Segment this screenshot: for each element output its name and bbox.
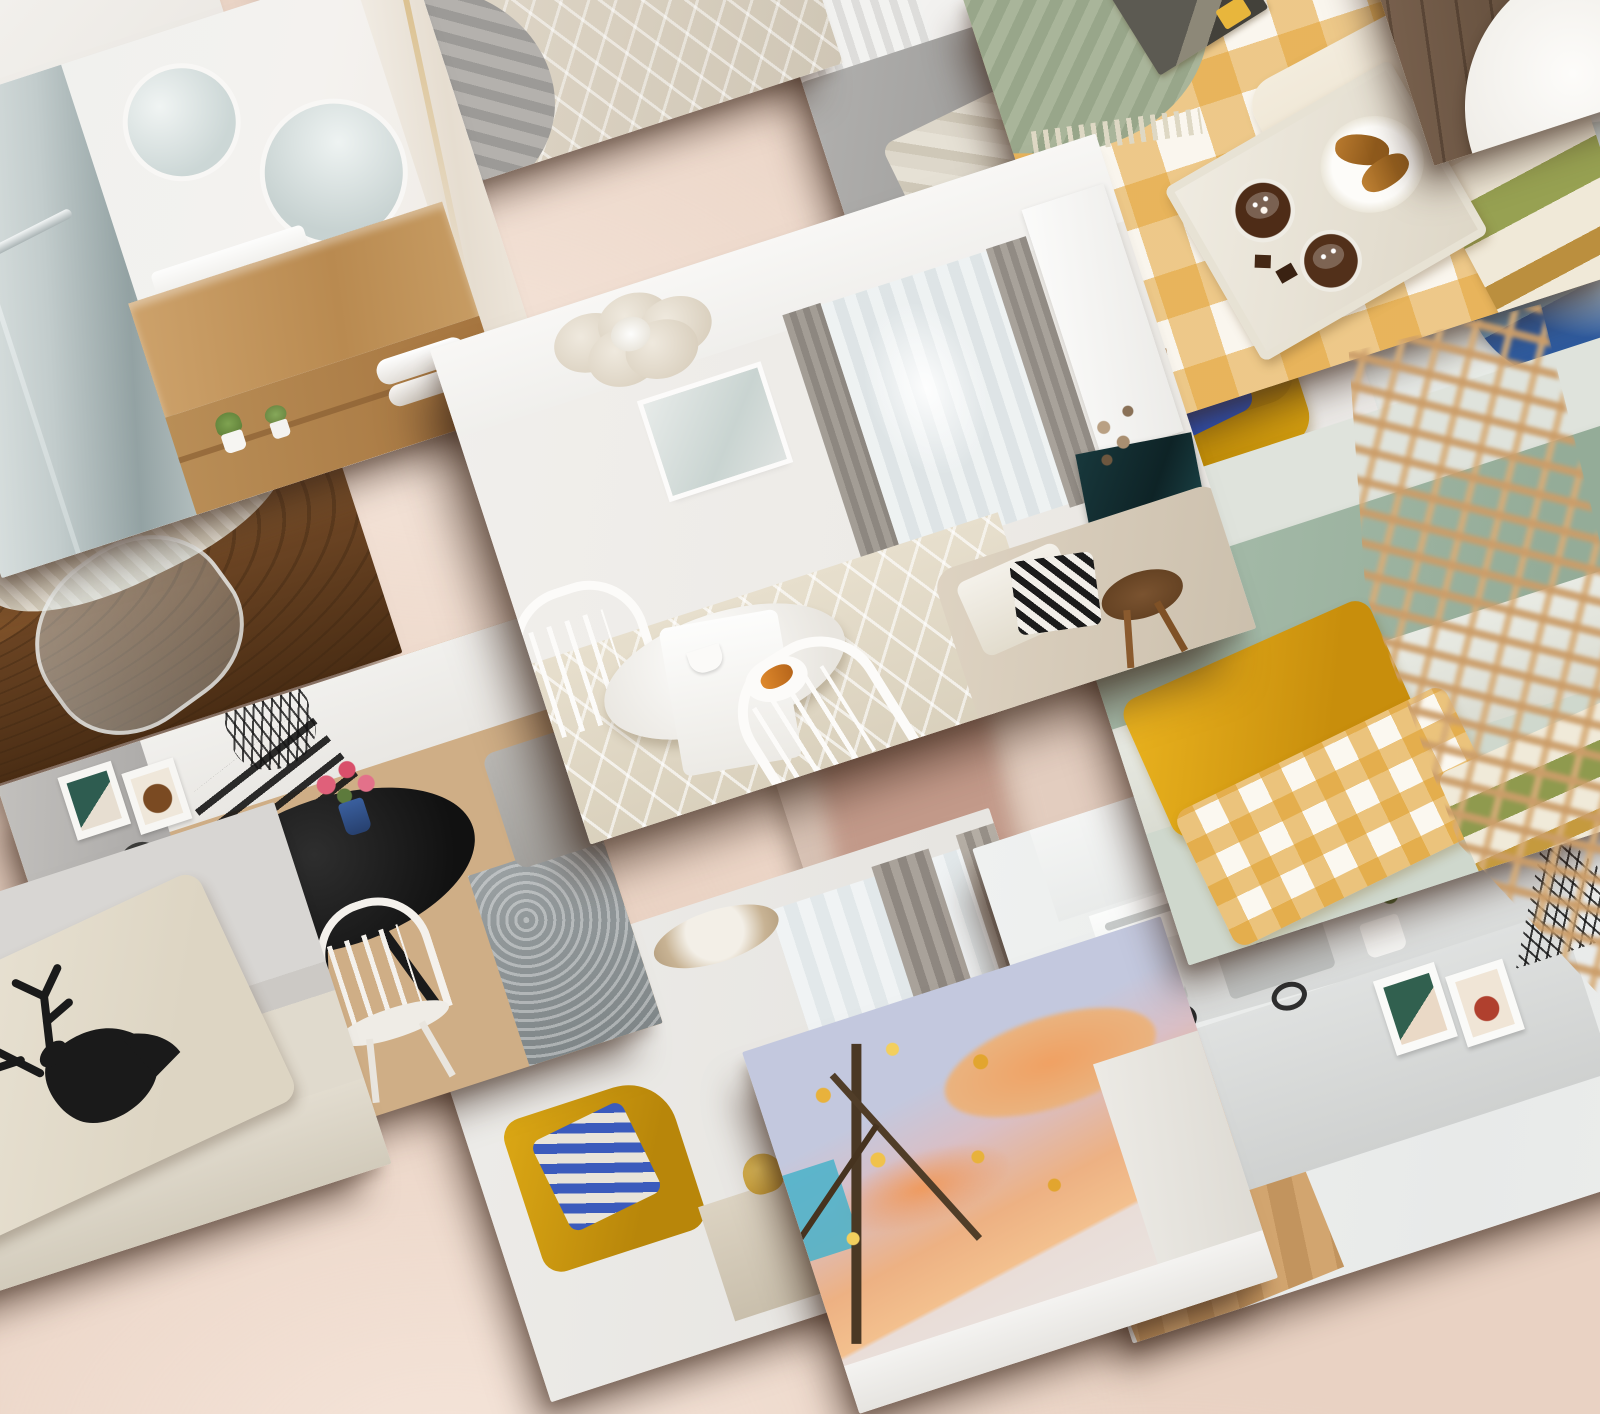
round-mirror <box>114 54 250 190</box>
ceiling-lamp <box>646 892 786 982</box>
diamond-pillow <box>1009 551 1102 636</box>
collage-canvas: { "board": { "type": "interior-design ph… <box>0 0 1600 1067</box>
flower-petal-lamp <box>544 272 723 403</box>
chocolate-square <box>1255 255 1271 269</box>
grey-rug <box>468 833 663 1066</box>
wall-art <box>643 368 787 496</box>
